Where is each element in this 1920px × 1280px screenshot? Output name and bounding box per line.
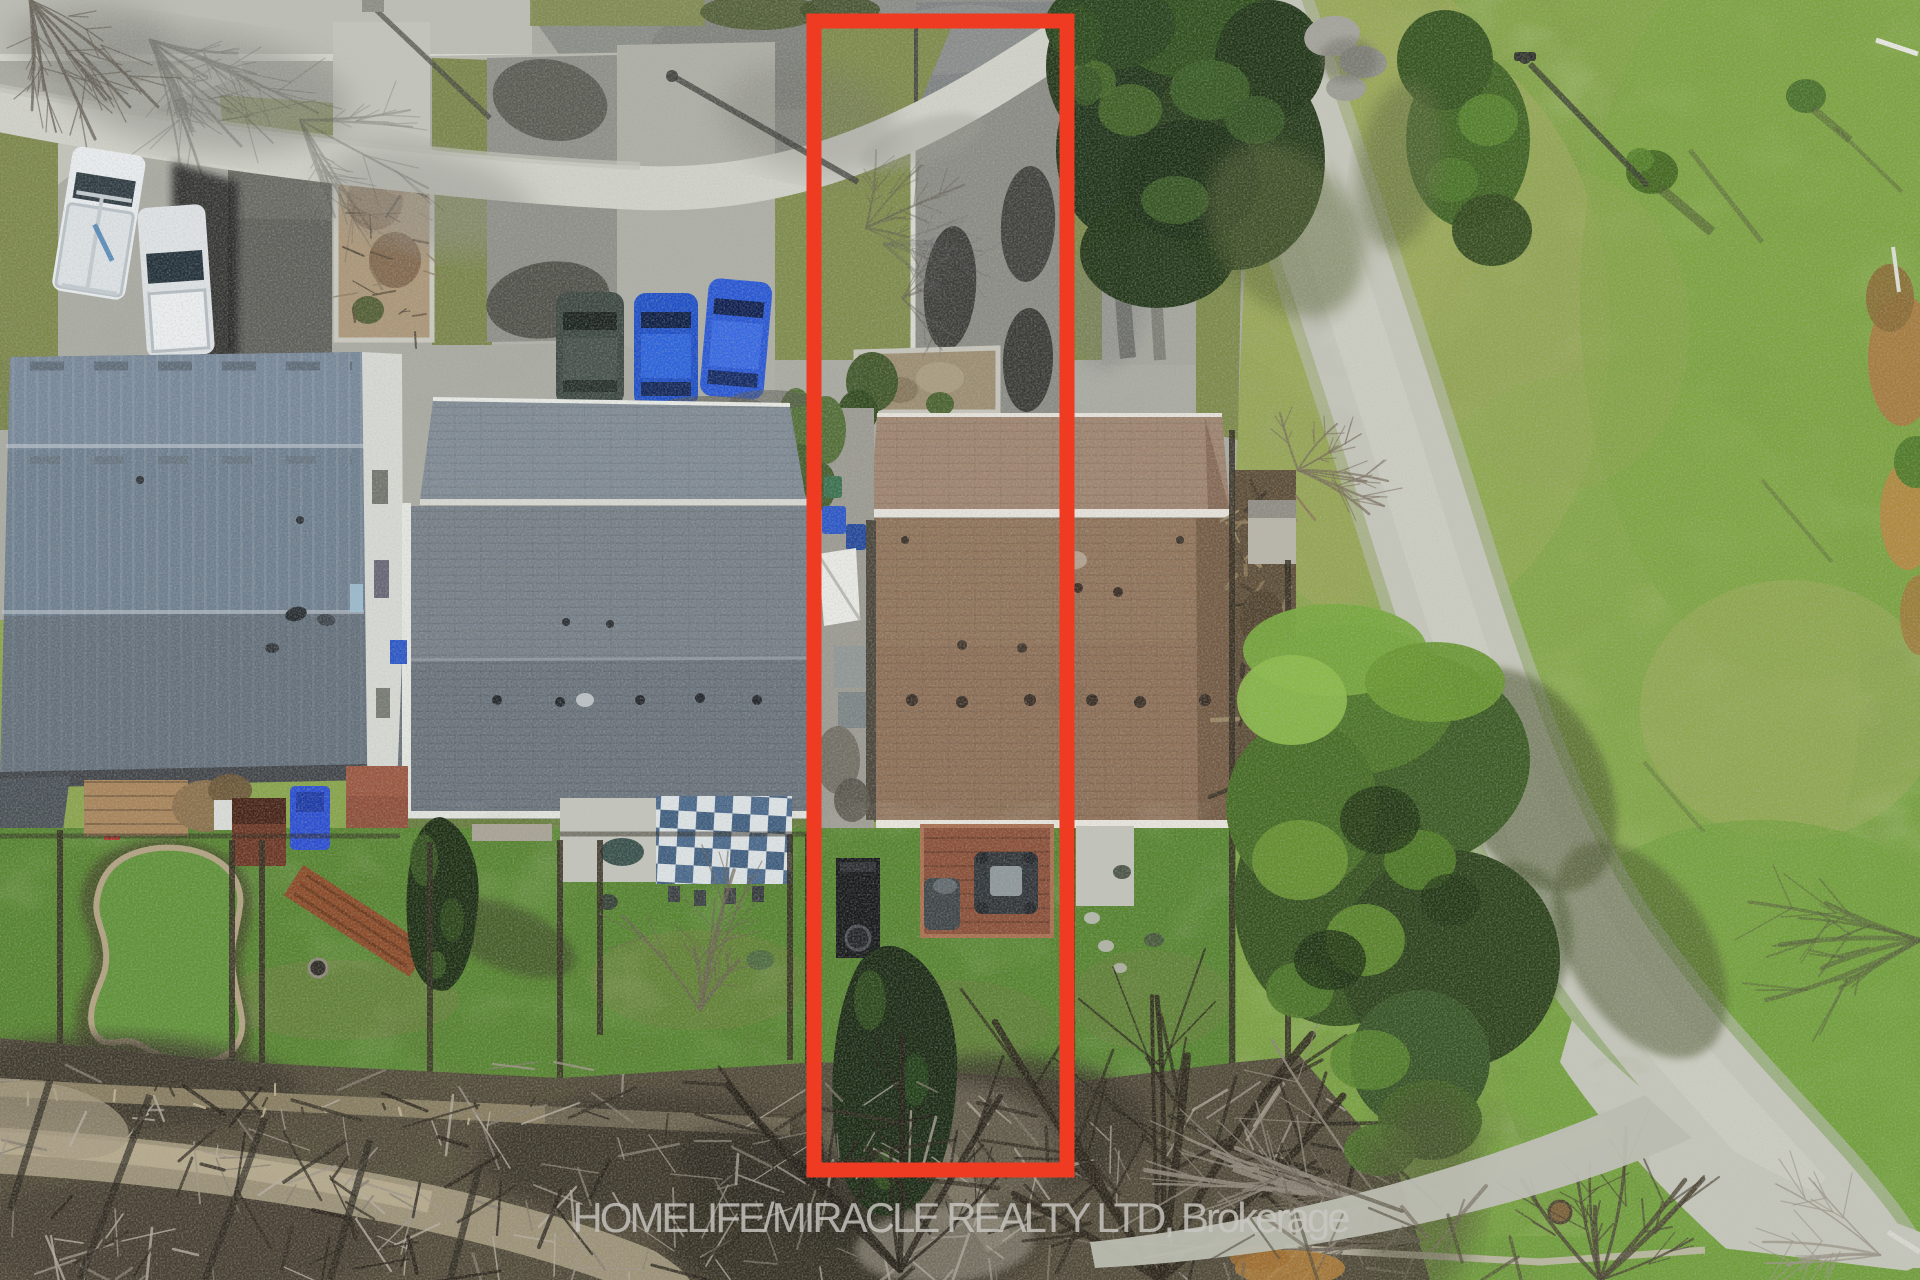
svg-text:HOMELIFE/MIRACLE REALTY LTD, B: HOMELIFE/MIRACLE REALTY LTD, Brokerage	[572, 1194, 1349, 1241]
